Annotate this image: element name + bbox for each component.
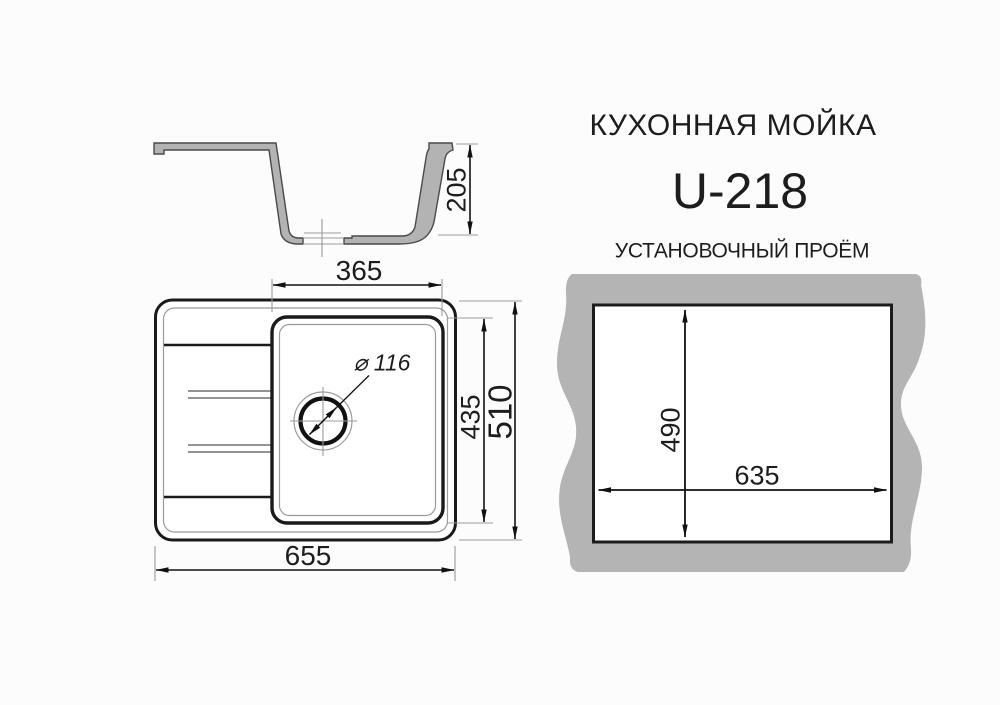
section-profile-right — [344, 143, 453, 244]
dim-label-cutout-width-635: 635 — [734, 463, 779, 490]
dim-label-sink-width-655: 655 — [285, 542, 332, 570]
cutout-view — [557, 274, 925, 572]
dim-label-cutout-height-490: 490 — [658, 407, 685, 452]
dim-label-bowl-width-365: 365 — [336, 257, 383, 285]
cutout-rect — [594, 305, 892, 542]
dim-label-sink-depth-510: 510 — [484, 384, 517, 439]
dim-label-bowl-depth-435: 435 — [458, 394, 485, 439]
drawing-linework — [0, 0, 1000, 705]
cutout-subtitle: УСТАНОВОЧНЫЙ ПРОЁМ — [615, 241, 869, 262]
section-view — [154, 143, 478, 257]
dim-label-drain-diameter: ⌀ 116 — [354, 352, 411, 375]
model-number: U-218 — [672, 166, 808, 216]
dim-label-depth-205: 205 — [444, 167, 471, 212]
bowl-outline — [272, 317, 443, 523]
section-profile-left — [154, 143, 303, 244]
sink-technical-drawing: КУХОННАЯ МОЙКА U-218 УСТАНОВОЧНЫЙ ПРОЁМ … — [0, 0, 1000, 705]
drawing-title: КУХОННАЯ МОЙКА — [590, 111, 877, 141]
